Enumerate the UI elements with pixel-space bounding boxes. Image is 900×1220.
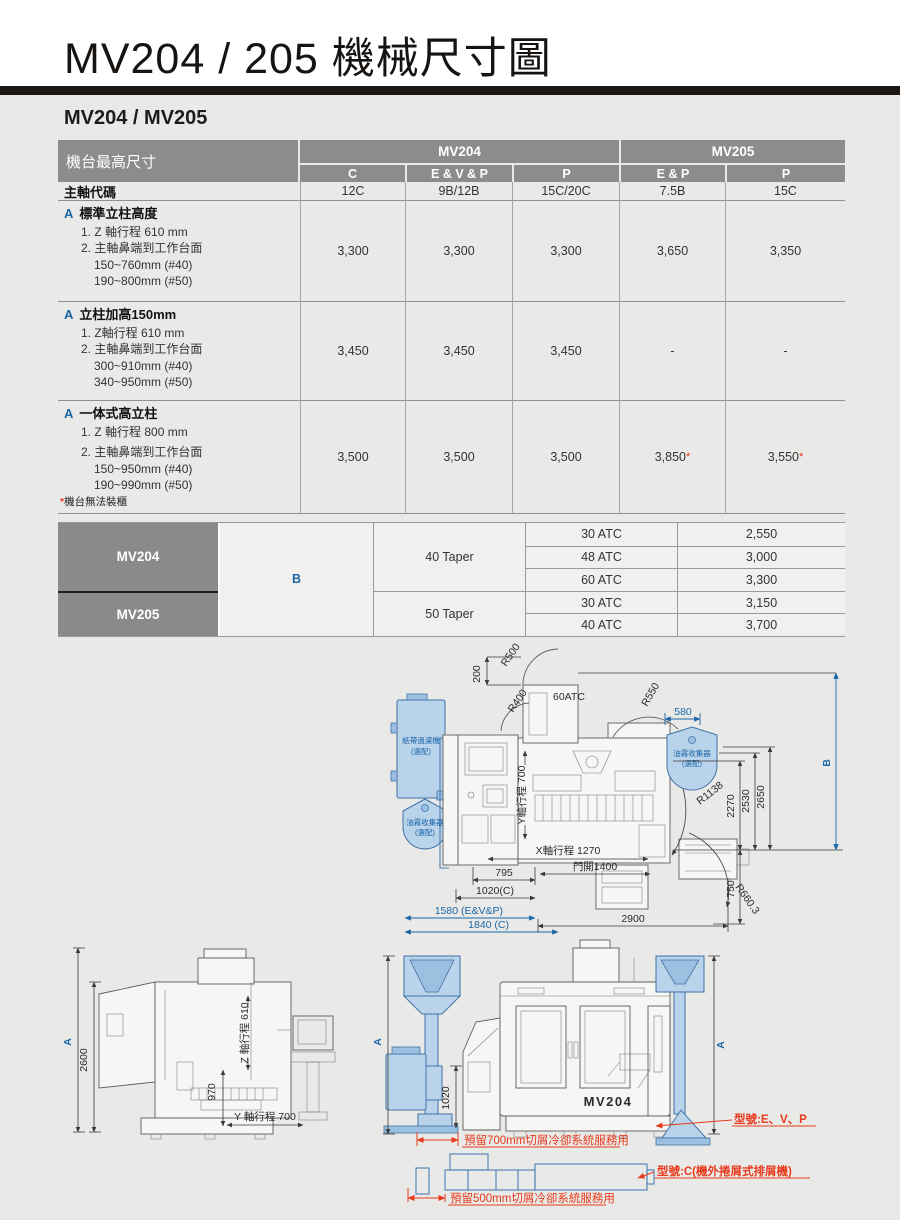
- svg-text:B: B: [821, 759, 833, 767]
- table-value: 3,450: [512, 301, 619, 400]
- spec-line: 150~760mm (#40): [64, 257, 296, 274]
- table-value: 3,500: [300, 400, 405, 514]
- col-header: E & V & P: [405, 165, 512, 182]
- machine-front-outline: MV204: [463, 940, 670, 1137]
- paper-belt-filter: 紙帶過濾機 (選配): [391, 694, 451, 800]
- section-raised-column: A立柱加高150mm 1. Z軸行程 610 mm 2. 主軸鼻端到工作台面 3…: [58, 301, 300, 400]
- table-corner-header: 機台最高尺寸: [58, 140, 300, 182]
- table-value: 3,500: [512, 400, 619, 514]
- section-marker: A: [64, 307, 73, 322]
- machine-model-badge: MV204: [584, 1094, 633, 1109]
- table-value: -: [619, 301, 725, 400]
- dim-a-front-right: A: [708, 956, 727, 1134]
- spec-line: 2. 主軸鼻端到工作台面: [64, 444, 296, 461]
- y-travel-side: Y 軸行程 700: [227, 1110, 303, 1125]
- svg-text:2530: 2530: [740, 789, 752, 813]
- atc-value: 3,150: [677, 591, 845, 614]
- external-chip-conveyor: [416, 1154, 654, 1194]
- model-c-annotation: 型號:C(機外捲屑式排屑機): [638, 1164, 810, 1178]
- table-value: 3,300: [512, 200, 619, 301]
- svg-text:795: 795: [495, 867, 513, 879]
- row-header-mv205: MV205: [58, 591, 218, 636]
- svg-text:750: 750: [725, 880, 737, 898]
- table-value: 15C: [725, 182, 845, 200]
- machine-side-outline: [99, 949, 335, 1139]
- group-header-mv204: MV204: [300, 140, 619, 165]
- r500-label: R500: [499, 643, 523, 669]
- spec-line: 300~910mm (#40): [64, 358, 296, 375]
- atc-value: 3,300: [677, 568, 845, 591]
- table-value: 3,850*: [619, 400, 725, 514]
- oil-mist-collector-right: 油霧收集器 (選配): [667, 727, 717, 790]
- dim-a-side: A: [62, 948, 85, 1132]
- table-value: 15C/20C: [512, 182, 619, 200]
- spec-line: 340~950mm (#50): [64, 374, 296, 391]
- section-integrated-column: A一体式高立柱 1. Z 軸行程 800 mm 2. 主軸鼻端到工作台面 150…: [58, 400, 300, 514]
- side-view-diagram: A 2600 Z 軸行程 610 970 Y 軸行程 700: [55, 930, 365, 1165]
- page-title: MV204 / 205 機械尺寸圖: [64, 24, 552, 86]
- group-header-mv205: MV205: [619, 140, 845, 165]
- svg-text:2900: 2900: [621, 913, 645, 925]
- spindle-code-label: 主軸代碼: [58, 182, 300, 200]
- y-travel-label: Y軸行程 700: [515, 765, 528, 824]
- col-header: P: [512, 165, 619, 182]
- table-value: 9B/12B: [405, 182, 512, 200]
- atc-60-label: 60ATC: [553, 691, 585, 703]
- mist-right-label-2: (選配): [682, 758, 702, 768]
- svg-text:預留500mm切屑冷卻系統服務用: 預留500mm切屑冷卻系統服務用: [450, 1191, 615, 1205]
- dim-1580: 1580 (E&V&P): [405, 905, 535, 918]
- section-standard-column: A標準立柱高度 1. Z 軸行程 610 mm 2. 主軸鼻端到工作台面 150…: [58, 200, 300, 301]
- section-marker: A: [64, 206, 73, 221]
- svg-text:1020: 1020: [440, 1086, 452, 1110]
- section-title: 立柱加高150mm: [79, 307, 176, 322]
- section-subtitle: MV204 / MV205: [64, 107, 207, 130]
- svg-text:1020(C): 1020(C): [476, 885, 514, 897]
- atc-table: MV204 MV205 B 40 Taper 50 Taper 30 ATC 2…: [58, 522, 845, 637]
- spec-line: 190~800mm (#50): [64, 273, 296, 290]
- svg-text:門開1400: 門開1400: [573, 861, 618, 873]
- table-value: 12C: [300, 182, 405, 200]
- paper-filter-label: 紙帶過濾機: [402, 735, 440, 745]
- row-header-mv204: MV204: [58, 523, 218, 591]
- spec-line: 1. Z軸行程 610 mm: [64, 325, 296, 342]
- svg-text:型號:C(機外捲屑式排屑機): 型號:C(機外捲屑式排屑機): [657, 1164, 792, 1178]
- section-title: 一体式高立柱: [79, 406, 157, 421]
- atc-cell: 30 ATC: [525, 523, 677, 546]
- col-header: E & P: [619, 165, 725, 182]
- svg-text:1580 (E&V&P): 1580 (E&V&P): [435, 905, 503, 917]
- svg-text:型號:E、V、P: 型號:E、V、P: [734, 1112, 807, 1126]
- table-value: 3,300: [405, 200, 512, 301]
- atc-value: 2,550: [677, 523, 845, 546]
- taper-40-cell: 40 Taper: [373, 523, 525, 591]
- footnote-text: 機台無法裝櫃: [64, 496, 127, 508]
- table-value: 3,550*: [725, 400, 845, 514]
- reserve-700-annotation: 預留700mm切屑冷卻系統服務用: [417, 1132, 629, 1147]
- front-view-diagram: A MV204 1020: [368, 930, 893, 1220]
- spec-line: 2. 主軸鼻端到工作台面: [64, 240, 296, 257]
- section-title: 標準立柱高度: [79, 206, 157, 221]
- svg-text:200: 200: [471, 665, 483, 683]
- table-value: 3,350: [725, 200, 845, 301]
- table-value: 7.5B: [619, 182, 725, 200]
- col-header: P: [725, 165, 845, 182]
- table-value: 3,450: [300, 301, 405, 400]
- dim-b: B: [821, 673, 836, 850]
- svg-text:Y 軸行程 700: Y 軸行程 700: [234, 1110, 296, 1123]
- svg-text:970: 970: [206, 1083, 218, 1101]
- table-value: 3,450: [405, 301, 512, 400]
- svg-text:2600: 2600: [78, 1048, 90, 1072]
- z-travel-label: Z 軸行程 610: [238, 1002, 251, 1063]
- max-height-table: 機台最高尺寸 MV204 MV205 C E & V & P P E & P P…: [58, 140, 845, 514]
- mist-left-label: 油霧收集器: [406, 817, 444, 827]
- r550-label: R550: [639, 681, 662, 709]
- dimension-b-cell: B: [218, 523, 373, 636]
- dim-2600: 2600: [78, 982, 101, 1132]
- atc-cell: 60 ATC: [525, 568, 677, 591]
- col-header: C: [300, 165, 405, 182]
- spec-line: 1. Z 軸行程 800 mm: [64, 424, 296, 441]
- svg-text:580: 580: [674, 706, 692, 718]
- table-footnote: *機台無法裝櫃: [60, 494, 127, 511]
- svg-text:預留700mm切屑冷卻系統服務用: 預留700mm切屑冷卻系統服務用: [464, 1133, 629, 1147]
- spec-line: 150~950mm (#40): [64, 461, 296, 478]
- spec-line: 190~990mm (#50): [64, 477, 296, 494]
- spec-line: 2. 主軸鼻端到工作台面: [64, 341, 296, 358]
- svg-text:A: A: [372, 1038, 384, 1046]
- table-value: 3,300: [300, 200, 405, 301]
- svg-text:2270: 2270: [725, 794, 737, 818]
- atc-cell: 48 ATC: [525, 546, 677, 569]
- mist-right-label: 油霧收集器: [673, 748, 711, 758]
- taper-50-cell: 50 Taper: [373, 591, 525, 636]
- dim-1020c: 1020(C): [456, 885, 535, 903]
- svg-text:A: A: [62, 1038, 74, 1046]
- top-view-diagram: 紙帶過濾機 (選配) 油霧收集器 (選配): [383, 643, 870, 935]
- title-divider: [0, 86, 900, 95]
- x-travel-label: X軸行程 1270: [536, 844, 601, 857]
- section-marker: A: [64, 406, 73, 421]
- svg-text:2650: 2650: [755, 785, 767, 809]
- table-value: -: [725, 301, 845, 400]
- dim-580: 580: [665, 706, 700, 725]
- dim-795: 795: [473, 867, 535, 885]
- reserve-500-annotation: 預留500mm切屑冷卻系統服務用: [408, 1188, 615, 1205]
- atc-value: 3,000: [677, 546, 845, 569]
- table-value: 3,650: [619, 200, 725, 301]
- atc-cell: 30 ATC: [525, 591, 677, 614]
- svg-text:A: A: [715, 1041, 727, 1049]
- mist-left-label-2: (選配): [415, 827, 435, 837]
- atc-value: 3,700: [677, 613, 845, 636]
- paper-filter-label-2: (選配): [411, 746, 431, 756]
- table-value: 3,500: [405, 400, 512, 514]
- spec-line: 1. Z 軸行程 610 mm: [64, 224, 296, 241]
- atc-cell: 40 ATC: [525, 613, 677, 636]
